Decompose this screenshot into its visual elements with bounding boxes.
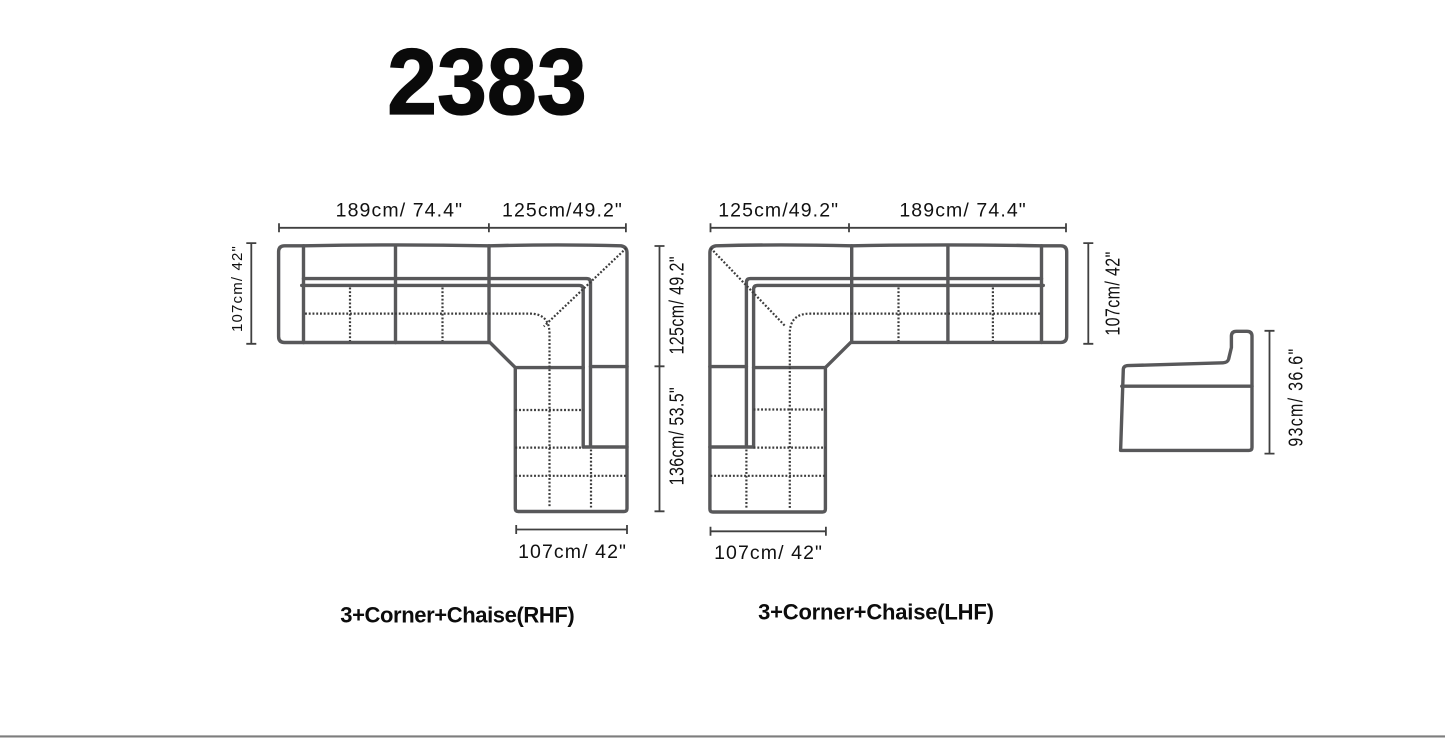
svg-text:125cm/ 49.2": 125cm/ 49.2" (665, 256, 688, 354)
svg-text:189cm/ 74.4": 189cm/ 74.4" (899, 200, 1026, 222)
svg-text:107cm/ 42": 107cm/ 42" (1101, 251, 1124, 335)
svg-text:107cm/ 42": 107cm/ 42" (518, 541, 627, 563)
svg-text:189cm/ 74.4": 189cm/ 74.4" (336, 200, 463, 222)
svg-text:107cm/ 42": 107cm/ 42" (229, 245, 246, 332)
svg-text:125cm/49.2": 125cm/49.2" (502, 200, 623, 222)
svg-text:3+Corner+Chaise(RHF): 3+Corner+Chaise(RHF) (340, 602, 574, 627)
svg-text:125cm/49.2": 125cm/49.2" (718, 200, 839, 222)
svg-text:107cm/ 42": 107cm/ 42" (714, 542, 823, 564)
svg-text:2383: 2383 (387, 30, 587, 134)
svg-text:3+Corner+Chaise(LHF): 3+Corner+Chaise(LHF) (758, 599, 994, 624)
svg-text:93cm/ 36.6": 93cm/ 36.6" (1285, 348, 1307, 447)
svg-text:136cm/ 53.5": 136cm/ 53.5" (665, 387, 688, 485)
